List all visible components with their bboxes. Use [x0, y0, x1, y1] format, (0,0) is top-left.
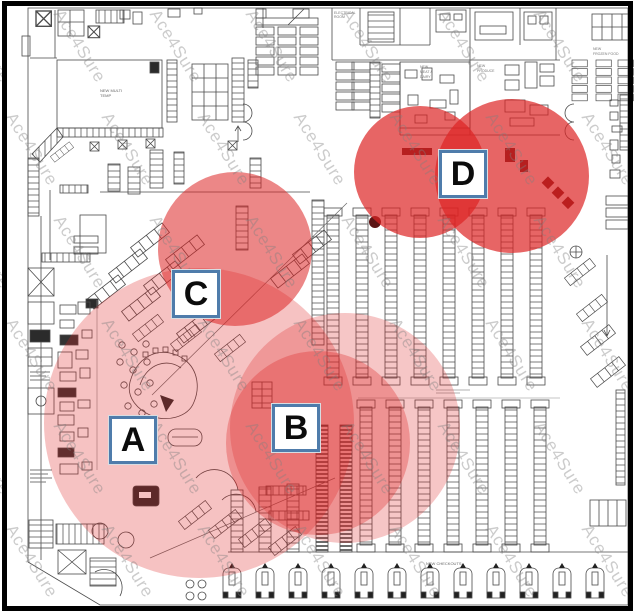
plan-label-frozen-2: FROZEN FOOD [593, 52, 619, 56]
coverage-circle-d [435, 99, 589, 253]
plan-label-meat-dairy-1: NEW [420, 65, 429, 69]
plan-label-meat-dairy-3: DAIRY [420, 75, 431, 79]
plan-label-electrical-2: ROOM [334, 15, 345, 19]
coverage-circle-c [158, 172, 312, 326]
plan-label-checkouts: NEW CHECKOUTS [426, 561, 462, 566]
plan-label-produce-1: NEW [477, 64, 486, 68]
plan-label-multi-temp-2: TEMP [100, 93, 111, 98]
plan-label-frozen-1: NEW [593, 47, 602, 51]
floor-plan: NEW MULTI TEMP ELECTRICAL ROOM NEW MEAT … [0, 0, 635, 613]
plan-label-produce-2: PRODUCE [477, 69, 495, 73]
exam-figure-store-map: NEW MULTI TEMP ELECTRICAL ROOM NEW MEAT … [0, 0, 635, 613]
coverage-circle-b [226, 351, 410, 535]
plan-label-meat-dairy-2: MEAT & [420, 70, 433, 74]
